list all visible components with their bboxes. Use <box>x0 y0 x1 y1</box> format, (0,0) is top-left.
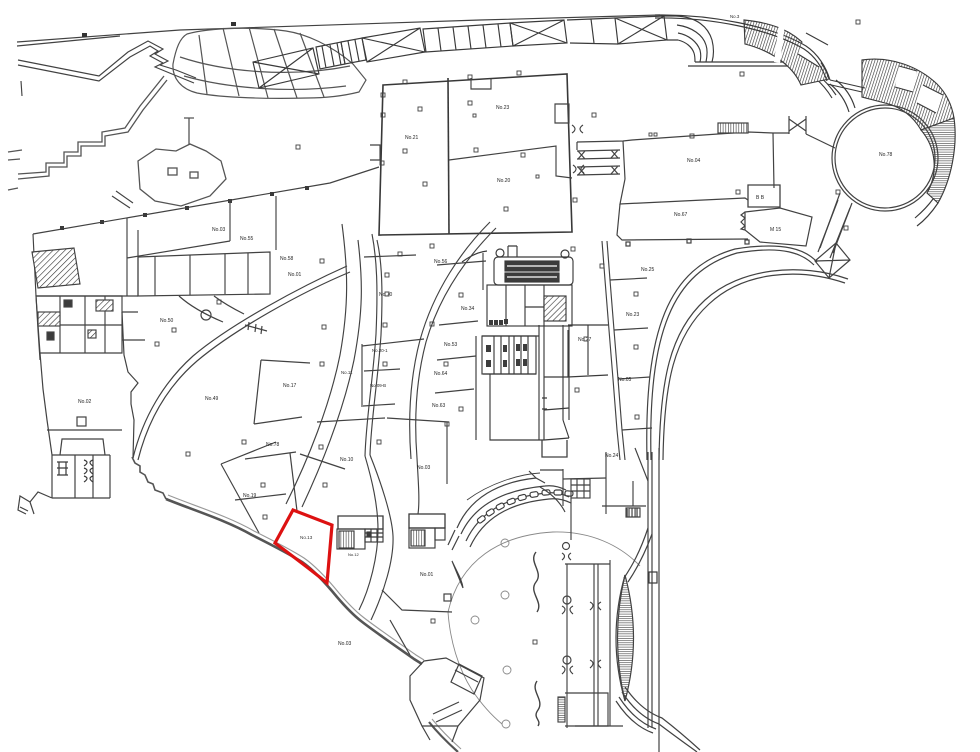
svg-text:No.53: No.53 <box>444 342 458 348</box>
svg-text:No.05: No.05 <box>618 377 632 383</box>
svg-text:No.78: No.78 <box>266 442 280 448</box>
svg-text:No.21: No.21 <box>405 135 419 141</box>
svg-text:No.67: No.67 <box>674 212 688 218</box>
svg-text:No.23: No.23 <box>626 312 640 318</box>
svg-text:No.64: No.64 <box>434 371 448 377</box>
svg-text:No.10: No.10 <box>340 457 354 463</box>
svg-text:No.49: No.49 <box>205 396 219 402</box>
svg-text:No.03: No.03 <box>338 641 352 647</box>
svg-text:M 15: M 15 <box>770 227 781 233</box>
svg-text:No.56: No.56 <box>434 259 448 265</box>
svg-text:No.20: No.20 <box>497 178 511 184</box>
svg-text:No.13: No.13 <box>300 535 313 540</box>
svg-text:No.04: No.04 <box>687 158 701 164</box>
svg-text:No.12: No.12 <box>348 552 359 557</box>
svg-text:No.09-B: No.09-B <box>370 383 386 388</box>
svg-text:No.19: No.19 <box>243 493 257 499</box>
svg-text:No.70: No.70 <box>379 292 393 298</box>
svg-text:No.3: No.3 <box>730 14 740 19</box>
svg-text:No.20-1: No.20-1 <box>372 348 388 353</box>
svg-text:No.50: No.50 <box>160 318 174 324</box>
svg-text:No.01: No.01 <box>420 572 434 578</box>
svg-text:No.02: No.02 <box>78 399 92 405</box>
svg-text:No.17: No.17 <box>283 383 297 389</box>
svg-text:No.03: No.03 <box>212 227 226 233</box>
svg-text:No.78: No.78 <box>879 152 893 158</box>
svg-text:No.34: No.34 <box>461 306 475 312</box>
svg-text:No.55: No.55 <box>240 236 254 242</box>
svg-text:No.03: No.03 <box>417 465 431 471</box>
svg-text:No.63: No.63 <box>432 403 446 409</box>
svg-text:B B: B B <box>756 195 765 201</box>
svg-text:No.27: No.27 <box>578 337 592 343</box>
svg-text:No.23: No.23 <box>496 105 510 111</box>
svg-text:No.11: No.11 <box>341 370 353 375</box>
svg-text:No.01: No.01 <box>288 272 302 278</box>
svg-text:No.58: No.58 <box>280 256 294 262</box>
svg-text:No.24: No.24 <box>605 453 619 459</box>
svg-text:No.25: No.25 <box>641 267 655 273</box>
